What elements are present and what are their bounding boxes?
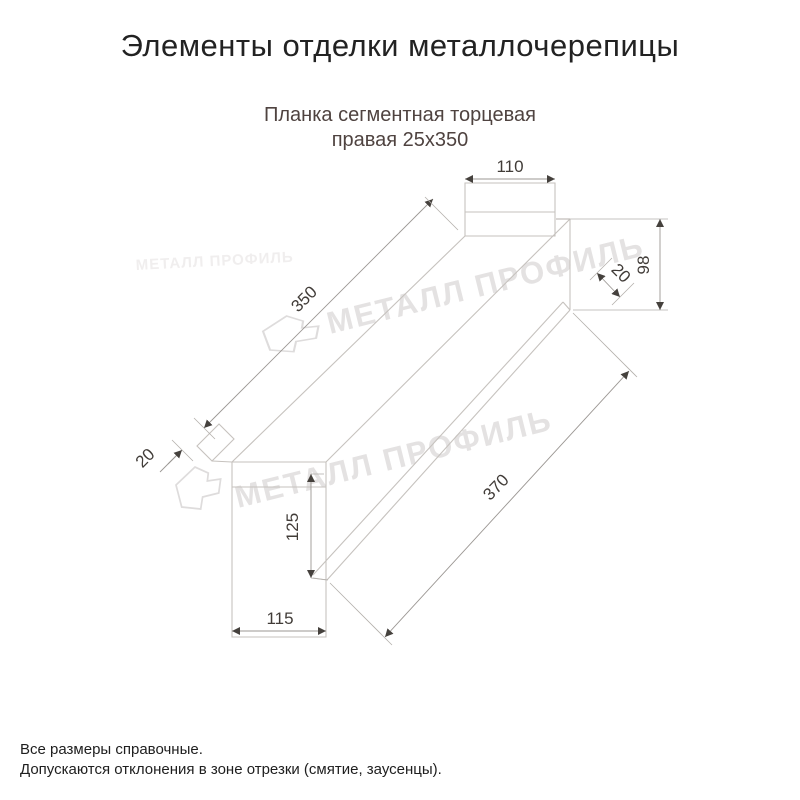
footer-note-line2: Допускаются отклонения в зоне отрезки (с… — [20, 760, 780, 780]
dim-20-left-label: 20 — [132, 445, 159, 472]
watermark-fragment-top-left: МЕТАЛЛ ПРОФИЛЬ — [135, 249, 294, 274]
footer-note-line1: Все размеры справочные. — [20, 740, 780, 760]
watermark-text: МЕТАЛЛ ПРОФИЛЬ — [135, 249, 294, 274]
dim-350-label: 350 — [287, 282, 320, 315]
dim-98-label: 98 — [634, 256, 653, 275]
dim-370-label: 370 — [479, 470, 512, 504]
dim-115-label: 115 — [266, 609, 293, 628]
technical-drawing: МЕТАЛЛ ПРОФИЛЬ МЕТАЛЛ ПРОФИЛЬ МЕТАЛЛ ПРО… — [0, 0, 800, 800]
dimension-left-face-width: 115 — [232, 609, 326, 631]
extension-line — [172, 440, 193, 461]
extension-line — [330, 583, 392, 645]
top-end-face — [465, 183, 555, 236]
metal-profil-logo-icon — [176, 467, 221, 509]
left-flange-tab — [197, 424, 234, 461]
lower-edge — [327, 310, 570, 580]
extension-line — [425, 197, 458, 230]
arrow-line — [168, 450, 182, 464]
extension-line — [194, 418, 215, 439]
dimension-left-flange: 20 — [132, 440, 193, 472]
dimension-line — [385, 371, 629, 637]
left-flange-connector — [212, 461, 232, 462]
dimension-top-width: 110 — [465, 157, 555, 179]
extension-line — [612, 283, 634, 305]
extension-line — [573, 313, 637, 377]
hem-right-connector — [563, 302, 570, 310]
dim-110-label: 110 — [496, 157, 523, 176]
footer-notes: Все размеры справочные. Допускаются откл… — [20, 740, 780, 780]
upper-edge — [232, 236, 465, 462]
dim-125-label: 125 — [283, 513, 302, 541]
watermark-text: МЕТАЛЛ ПРОФИЛЬ — [323, 228, 648, 341]
watermark-text: МЕТАЛЛ ПРОФИЛЬ — [231, 402, 556, 515]
